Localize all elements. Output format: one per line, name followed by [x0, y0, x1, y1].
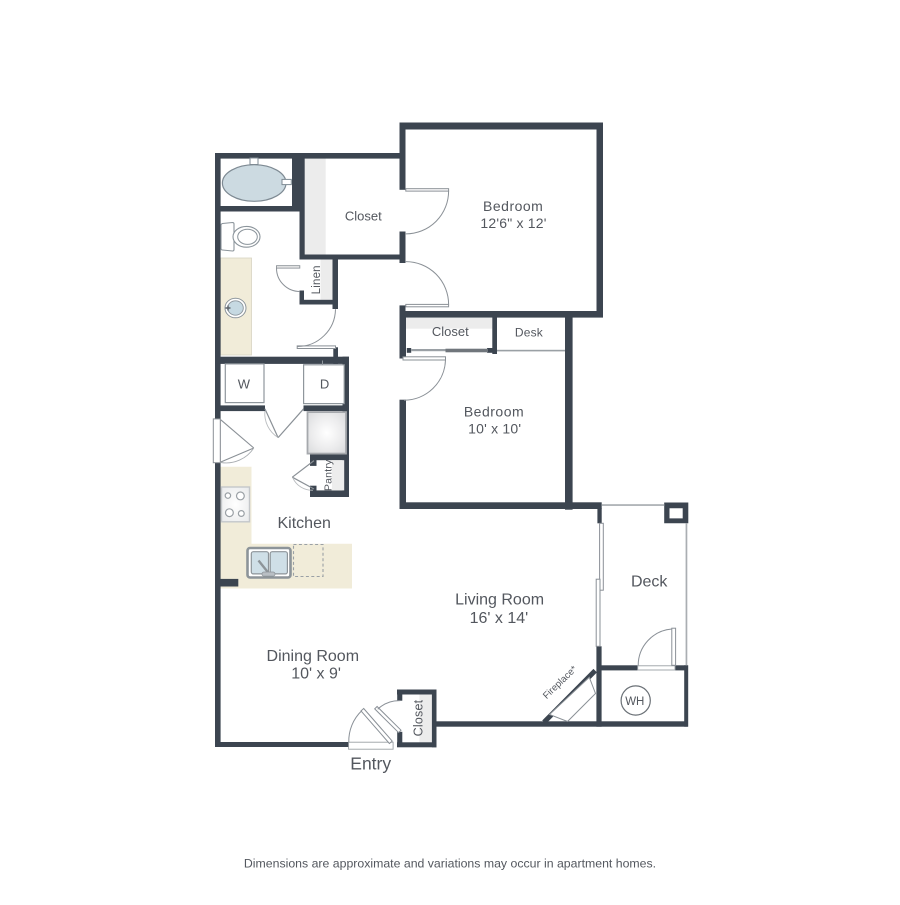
svg-text:Entry: Entry	[350, 754, 391, 774]
svg-text:Dining Room: Dining Room	[267, 648, 359, 665]
svg-text:Linen: Linen	[311, 265, 323, 294]
svg-text:Living Room: Living Room	[455, 592, 544, 609]
svg-text:Desk: Desk	[515, 325, 544, 339]
svg-text:Bedroom: Bedroom	[464, 403, 524, 419]
svg-text:Closet: Closet	[432, 324, 469, 339]
svg-text:Closet: Closet	[345, 209, 382, 224]
svg-text:Kitchen: Kitchen	[278, 515, 331, 532]
svg-text:Deck: Deck	[631, 573, 668, 590]
svg-text:Dimensions are approximate and: Dimensions are approximate and variation…	[244, 857, 656, 871]
svg-text:D: D	[320, 377, 329, 392]
svg-text:Pantry: Pantry	[323, 459, 335, 491]
svg-text:W: W	[238, 377, 251, 392]
svg-text:Closet: Closet	[412, 699, 426, 736]
svg-text:12'6" x 12': 12'6" x 12'	[480, 215, 546, 231]
svg-text:10' x 9': 10' x 9'	[291, 666, 341, 683]
svg-text:16' x 14': 16' x 14'	[470, 610, 529, 627]
svg-text:WH: WH	[625, 696, 644, 708]
svg-text:Bedroom: Bedroom	[483, 198, 543, 214]
svg-text:10' x 10': 10' x 10'	[468, 421, 521, 437]
